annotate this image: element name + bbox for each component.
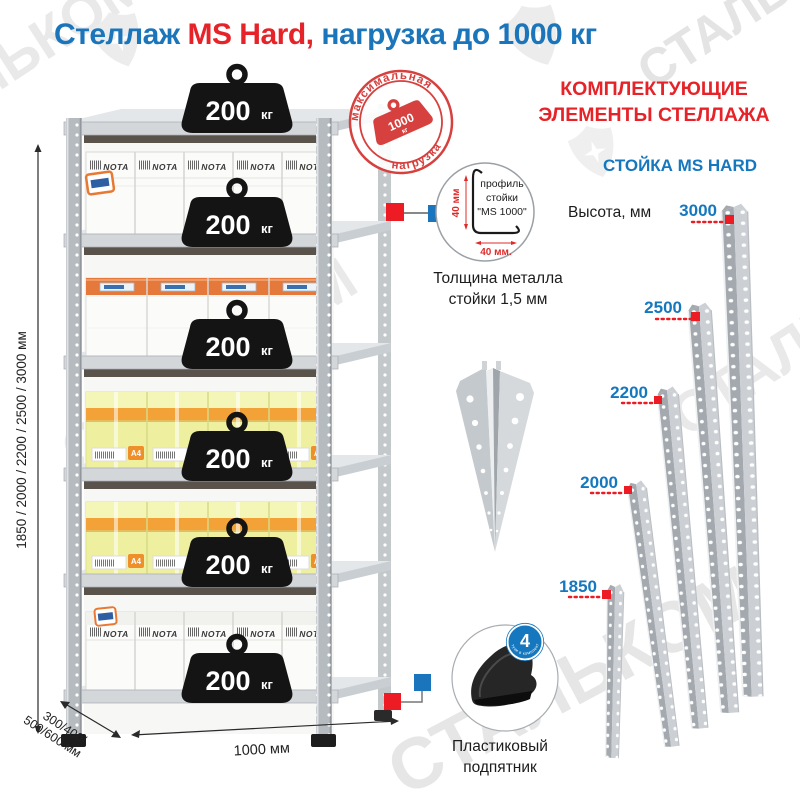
svg-text:A4: A4 [131,557,142,566]
svg-text:кг: кг [261,561,274,576]
svg-text:NOTA: NOTA [103,162,128,172]
svg-text:кг: кг [261,455,274,470]
svg-text:профиль: профиль [480,178,524,190]
svg-text:40 мм.: 40 мм. [480,247,512,258]
svg-text:2200: 2200 [610,383,648,402]
svg-text:"MS 1000": "MS 1000" [477,206,527,218]
post-profile-diagram: 40 мм 40 мм. профиль стойки "MS 1000" [436,163,534,261]
svg-text:стойки: стойки [486,192,518,204]
svg-text:NOTA: NOTA [250,162,275,172]
svg-text:кг: кг [261,107,274,122]
svg-text:200: 200 [205,210,250,240]
svg-text:200: 200 [205,666,250,696]
svg-text:NOTA: NOTA [152,629,177,639]
svg-text:2500: 2500 [644,298,682,317]
svg-text:3000: 3000 [679,201,717,220]
svg-text:NOTA: NOTA [250,629,275,639]
svg-text:1850: 1850 [559,577,597,596]
upright-posts-set: 3000 2500 2200 2000 1850 [555,183,800,783]
weight-badge: 200 кг [182,67,293,134]
height-callout-2000: 2000 [580,473,632,494]
components-heading-line2: ЭЛЕМЕНТЫ СТЕЛЛАЖА [538,102,770,128]
thickness-line1: Толщина металла [428,268,568,289]
svg-text:NOTA: NOTA [152,162,177,172]
thickness-line2: стойки 1,5 мм [428,289,568,310]
components-heading: КОМПЛЕКТУЮЩИЕ ЭЛЕМЕНТЫ СТЕЛЛАЖА [538,76,770,128]
rack-front-post-left [61,118,86,747]
svg-text:1850 / 2000 / 2200 / 2500 / 30: 1850 / 2000 / 2200 / 2500 / 3000 мм [14,331,29,548]
foot-label-line1: Пластиковый [430,736,570,757]
svg-text:200: 200 [205,96,250,126]
svg-text:NOTA: NOTA [103,629,128,639]
svg-text:2000: 2000 [580,473,618,492]
svg-text:200: 200 [205,444,250,474]
brand-sticker [86,171,115,194]
svg-text:NOTA: NOTA [201,629,226,639]
svg-text:кг: кг [261,221,274,236]
upright-post-1850 [603,584,624,758]
svg-text:200: 200 [205,332,250,362]
height-callout-2200: 2200 [610,383,662,404]
plastic-foot-label: Пластиковый подпятник [430,736,570,778]
foot-label-line2: подпятник [430,757,570,778]
corner-post-photo [456,361,534,552]
brand-sticker [94,607,117,626]
rack-back-post [374,104,392,721]
dimension-height: 1850 / 2000 / 2200 / 2500 / 3000 мм [14,144,42,734]
stand-subheading: СТОЙКА MS HARD [545,156,757,176]
height-callout-1850: 1850 [559,577,611,599]
callout-marker-foot [384,674,431,710]
thickness-label: Толщина металла стойки 1,5 мм [428,268,568,310]
svg-text:4: 4 [520,631,530,651]
svg-text:A4: A4 [131,449,142,458]
svg-text:200: 200 [205,550,250,580]
svg-text:кг: кг [261,677,274,692]
components-heading-line1: КОМПЛЕКТУЮЩИЕ [538,76,770,102]
svg-text:40 мм: 40 мм [451,189,462,218]
rack-illustration: NOTA NOTA NOTA NOTA NOTA [0,40,460,800]
svg-text:1000 мм: 1000 мм [233,741,290,760]
svg-text:кг: кг [261,343,274,358]
svg-text:NOTA: NOTA [201,162,226,172]
